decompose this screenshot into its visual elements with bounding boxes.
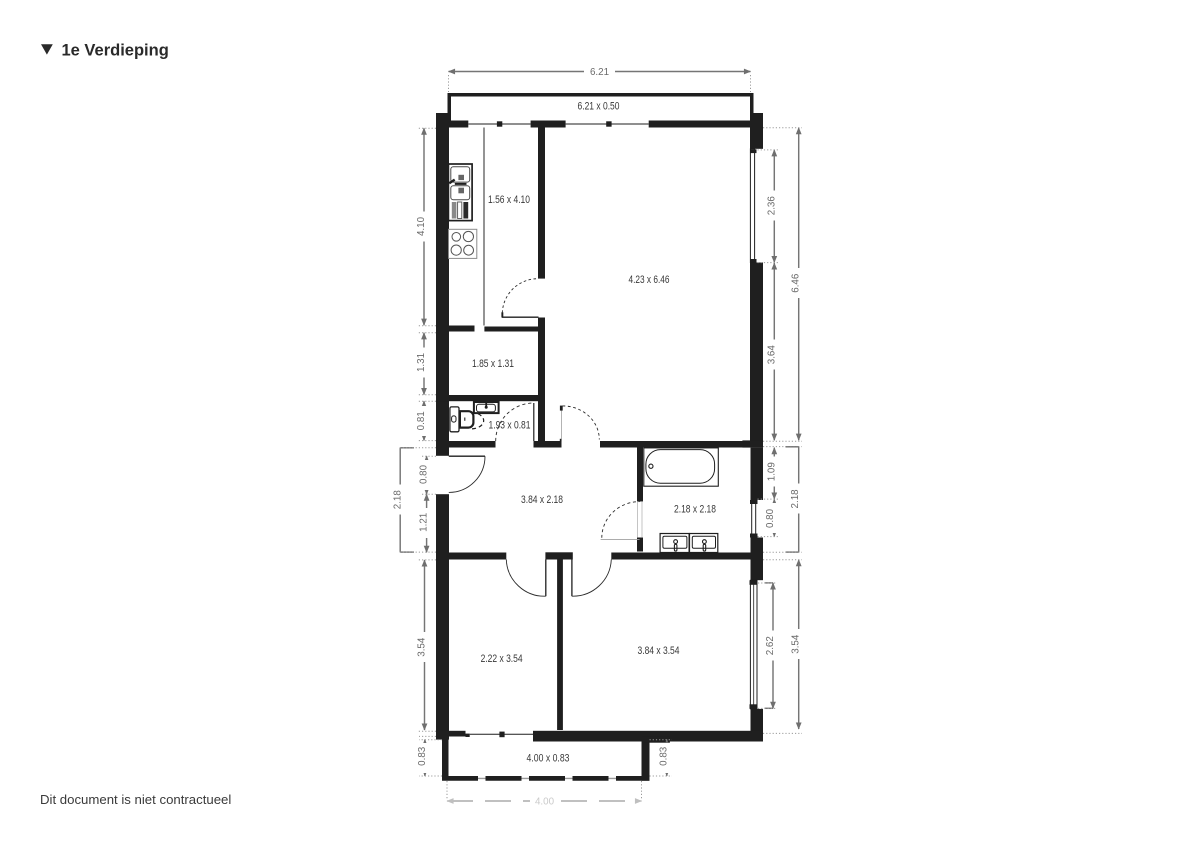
svg-text:1.93 x 0.81: 1.93 x 0.81 [489,420,531,432]
svg-text:6.21 x 0.50: 6.21 x 0.50 [578,101,620,113]
svg-text:3.64: 3.64 [766,345,777,365]
svg-text:2.18: 2.18 [790,489,801,509]
svg-text:0.83: 0.83 [658,746,669,766]
svg-text:4.10: 4.10 [416,216,427,236]
svg-text:4.00: 4.00 [535,797,555,808]
svg-text:4.23 x 6.46: 4.23 x 6.46 [629,274,670,286]
svg-text:0.83: 0.83 [417,746,428,766]
svg-text:6.21: 6.21 [590,67,609,78]
svg-text:2.22 x 3.54: 2.22 x 3.54 [481,653,523,665]
svg-text:2.18: 2.18 [393,490,404,510]
svg-text:1.21: 1.21 [419,513,430,532]
svg-text:3.54: 3.54 [417,637,428,657]
svg-text:3.54: 3.54 [791,634,802,654]
svg-text:0.81: 0.81 [416,411,427,430]
svg-text:1.31: 1.31 [416,353,427,372]
svg-text:2.36: 2.36 [766,196,777,216]
svg-text:1e Verdieping: 1e Verdieping [62,42,169,60]
svg-text:0.80: 0.80 [765,508,776,528]
svg-text:2.18 x 2.18: 2.18 x 2.18 [674,504,716,516]
svg-text:4.00 x 0.83: 4.00 x 0.83 [527,753,570,765]
svg-text:1.85 x 1.31: 1.85 x 1.31 [472,358,514,370]
svg-text:3.84 x 2.18: 3.84 x 2.18 [521,494,563,506]
svg-text:3.84 x 3.54: 3.84 x 3.54 [638,645,680,657]
svg-text:0.80: 0.80 [419,464,430,484]
svg-text:6.46: 6.46 [791,273,802,293]
svg-text:1.56 x 4.10: 1.56 x 4.10 [488,194,530,206]
svg-text:Dit document is niet contractu: Dit document is niet contractueel [40,792,231,807]
svg-text:1.09: 1.09 [766,462,777,481]
svg-text:2.62: 2.62 [765,636,776,655]
